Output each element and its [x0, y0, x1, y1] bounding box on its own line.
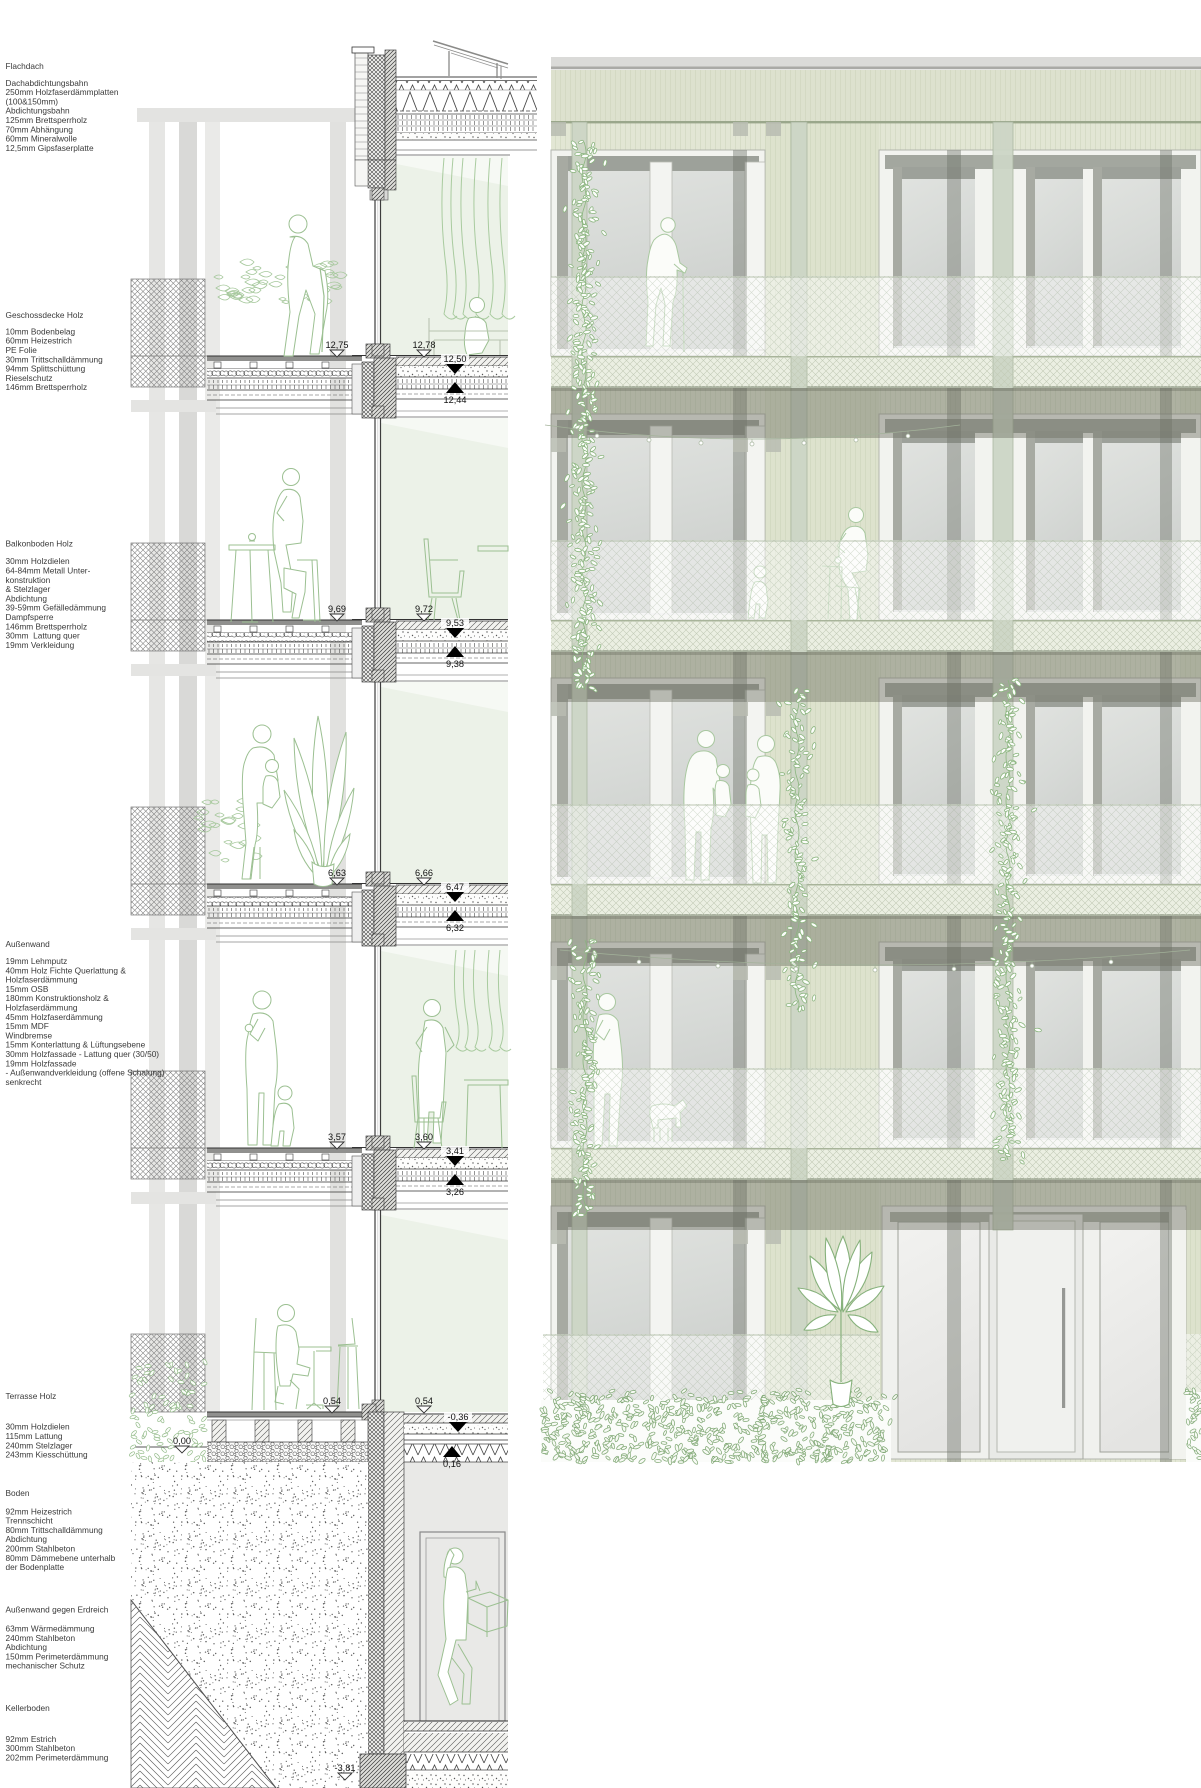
svg-text:Flachdach: Flachdach — [6, 61, 45, 71]
svg-text:12,44: 12,44 — [444, 395, 467, 405]
svg-text:19mm Verkleidung: 19mm Verkleidung — [6, 640, 75, 650]
svg-text:0,54: 0,54 — [415, 1396, 433, 1406]
svg-text:Balkonboden Holz: Balkonboden Holz — [6, 539, 73, 549]
svg-text:12,5mm Gipsfaserplatte: 12,5mm Gipsfaserplatte — [6, 143, 94, 153]
svg-text:Außenwand: Außenwand — [6, 939, 51, 949]
svg-text:Boden: Boden — [6, 1488, 30, 1498]
svg-text:9,69: 9,69 — [328, 604, 346, 614]
svg-text:6,47: 6,47 — [446, 882, 464, 892]
svg-text:202mm Perimeterdämmung: 202mm Perimeterdämmung — [6, 1752, 109, 1762]
svg-text:der Bodenplatte: der Bodenplatte — [6, 1562, 65, 1572]
svg-text:9,72: 9,72 — [415, 604, 433, 614]
svg-text:9,38: 9,38 — [446, 659, 464, 669]
svg-text:0,54: 0,54 — [323, 1396, 341, 1406]
svg-text:9,53: 9,53 — [446, 618, 464, 628]
svg-text:3,26: 3,26 — [446, 1187, 464, 1197]
svg-text:Außenwand gegen Erdreich: Außenwand gegen Erdreich — [6, 1605, 109, 1615]
svg-text:3,41: 3,41 — [446, 1146, 464, 1156]
svg-text:6,32: 6,32 — [446, 923, 464, 933]
svg-text:6,66: 6,66 — [415, 868, 433, 878]
svg-text:0,00: 0,00 — [173, 1436, 191, 1446]
svg-text:Terrasse Holz: Terrasse Holz — [6, 1391, 57, 1401]
svg-text:Kellerboden: Kellerboden — [6, 1703, 51, 1713]
svg-text:senkrecht: senkrecht — [6, 1077, 43, 1087]
svg-text:12,75: 12,75 — [326, 340, 349, 350]
svg-text:243mm Kiesschüttung: 243mm Kiesschüttung — [6, 1450, 88, 1460]
svg-text:0,16: 0,16 — [443, 1459, 461, 1469]
svg-text:146mm Brettsperrholz: 146mm Brettsperrholz — [6, 382, 88, 392]
svg-text:-3,81: -3,81 — [335, 1763, 356, 1773]
svg-text:12,50: 12,50 — [444, 354, 467, 364]
svg-text:-0,36: -0,36 — [448, 1412, 469, 1422]
svg-text:12,78: 12,78 — [413, 340, 436, 350]
svg-text:3,60: 3,60 — [415, 1132, 433, 1142]
svg-text:Geschossdecke Holz: Geschossdecke Holz — [6, 310, 84, 320]
svg-text:3,57: 3,57 — [328, 1132, 346, 1142]
svg-text:mechanischer Schutz: mechanischer Schutz — [6, 1661, 85, 1671]
svg-text:6,63: 6,63 — [328, 868, 346, 878]
